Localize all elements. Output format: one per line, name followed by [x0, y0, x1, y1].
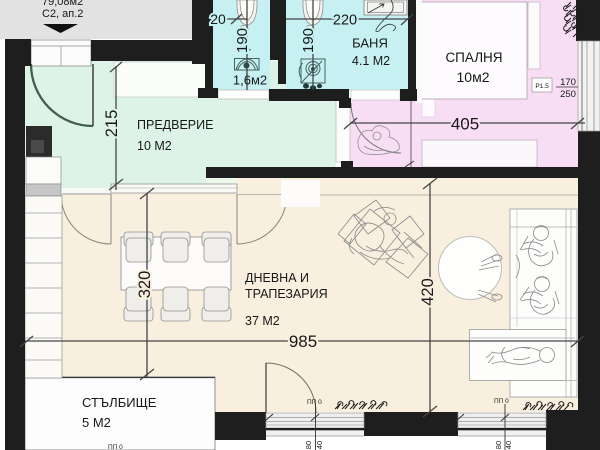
svg-text:79,08м2: 79,08м2 — [42, 0, 83, 8]
svg-text:5 М2: 5 М2 — [82, 415, 111, 430]
svg-text:СПАЛНЯ: СПАЛНЯ — [445, 50, 502, 65]
svg-text:10 М2: 10 М2 — [137, 139, 172, 153]
svg-text:ДНЕВНА И: ДНЕВНА И — [245, 271, 309, 285]
svg-text:190: 190 — [300, 28, 317, 53]
svg-text:320: 320 — [136, 271, 154, 299]
svg-text:170: 170 — [560, 77, 576, 88]
svg-text:БАНЯ: БАНЯ — [352, 36, 388, 51]
svg-text:ПП 0: ПП 0 — [307, 399, 322, 406]
svg-text:20: 20 — [210, 11, 226, 27]
svg-text:985: 985 — [289, 332, 317, 351]
svg-text:ПП 0: ПП 0 — [494, 398, 509, 405]
svg-text:80: 80 — [494, 441, 503, 449]
svg-text:405: 405 — [451, 115, 479, 134]
svg-text:10м2: 10м2 — [457, 69, 490, 85]
svg-text:4.1 М2: 4.1 М2 — [352, 54, 390, 68]
svg-text:ПРЕДВЕРИЕ: ПРЕДВЕРИЕ — [137, 118, 213, 132]
svg-text:ТРАПЕЗАРИЯ: ТРАПЕЗАРИЯ — [245, 287, 328, 301]
svg-text:ПП 0: ПП 0 — [108, 444, 123, 450]
svg-text:215: 215 — [103, 110, 121, 138]
svg-text:37 М2: 37 М2 — [245, 314, 280, 328]
svg-text:220: 220 — [333, 13, 357, 29]
svg-text:Р1.5: Р1.5 — [535, 83, 549, 90]
svg-text:250: 250 — [560, 89, 576, 100]
svg-text:190: 190 — [234, 28, 251, 53]
svg-text:СТЪЛБИЩЕ: СТЪЛБИЩЕ — [82, 395, 157, 410]
svg-text:420: 420 — [419, 278, 437, 306]
svg-text:С2, ап.2: С2, ап.2 — [42, 8, 83, 20]
svg-text:40: 40 — [315, 441, 324, 449]
svg-text:1,6м2: 1,6м2 — [233, 73, 267, 88]
svg-text:80: 80 — [304, 441, 313, 449]
